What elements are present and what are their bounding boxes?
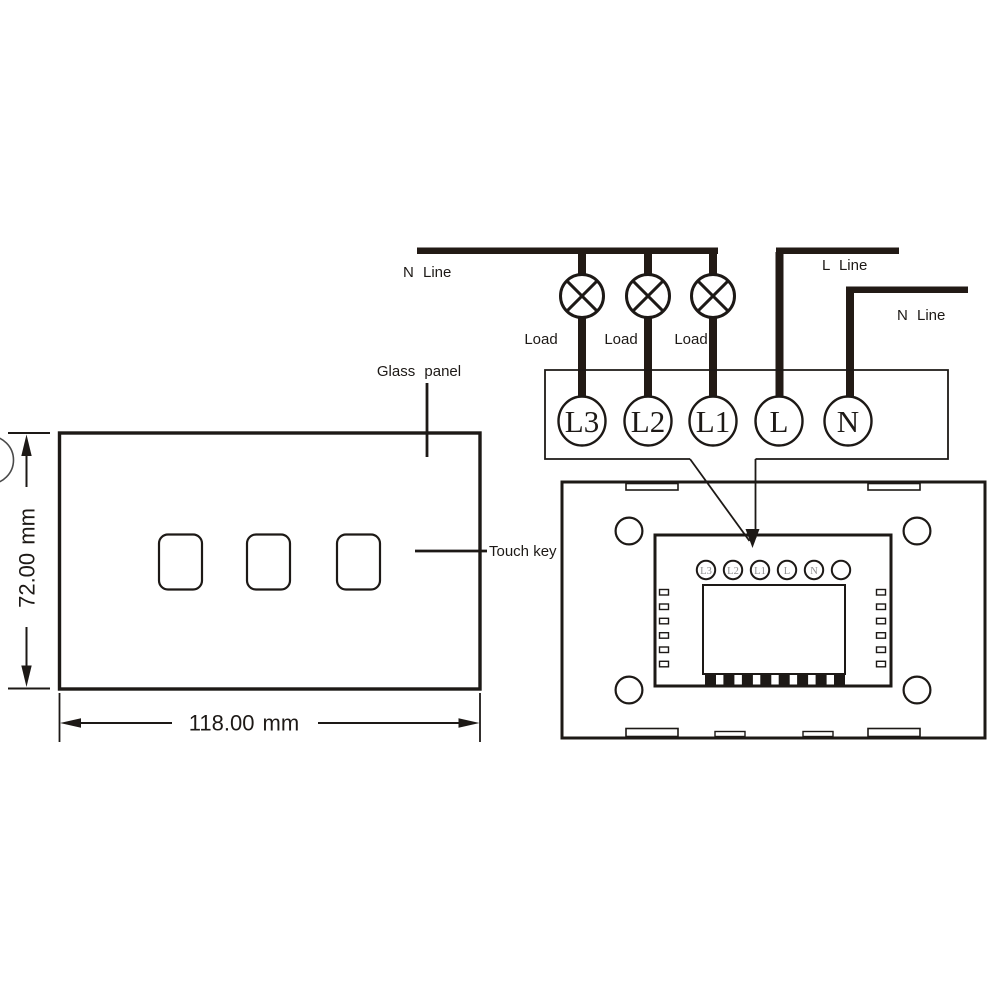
relay-block	[703, 585, 845, 674]
pin	[723, 674, 734, 686]
wire	[644, 252, 652, 276]
pin	[742, 674, 753, 686]
pin	[816, 674, 827, 686]
terminal-label: L	[770, 404, 789, 439]
pin	[760, 674, 771, 686]
module-terminal-label: L	[784, 566, 790, 577]
wire	[846, 291, 854, 399]
touch-switch-diagram: Glass panel Touch key 72.00 mm 118.00 mm	[0, 0, 1000, 1000]
terminal-label: L1	[696, 404, 730, 439]
load-label: Load	[674, 331, 707, 348]
terminal-label: L3	[565, 404, 599, 439]
load-label: Load	[524, 331, 557, 348]
left-arrow-icon	[60, 718, 81, 727]
neutral-bus-wire	[417, 248, 718, 255]
neutral-line-label: N Line	[897, 307, 945, 324]
glass-panel-outline	[60, 433, 481, 689]
pin	[779, 674, 790, 686]
pin	[797, 674, 808, 686]
right-arrow-icon	[459, 718, 480, 727]
terminal-label: L2	[631, 404, 665, 439]
pin	[834, 674, 845, 686]
live-line-label: L Line	[822, 257, 867, 274]
load-label: Load	[604, 331, 637, 348]
neutral-line-wire	[846, 287, 968, 294]
lamp-load-symbol	[627, 275, 670, 318]
wire	[578, 316, 586, 400]
lamp-load-symbol	[561, 275, 604, 318]
cropped-edge-arc	[0, 436, 14, 484]
width-dimension: 118.00 mm	[60, 693, 481, 742]
lamp-load-symbol	[692, 275, 735, 318]
module-terminal-label: L2	[727, 566, 739, 577]
wiring-diagram-page: Glass panel Touch key 72.00 mm 118.00 mm	[0, 0, 1000, 1000]
height-dimension: 72.00 mm	[8, 433, 50, 689]
width-dimension-value: 118.00 mm	[189, 711, 299, 736]
up-arrow-icon	[21, 435, 31, 457]
terminal-label: N	[837, 404, 859, 439]
down-arrow-icon	[21, 666, 31, 688]
terminal-screw	[832, 561, 850, 579]
module-terminal-label: L1	[754, 566, 766, 577]
switch-back-view: L3 L2 L1 L N	[562, 482, 985, 738]
glass-panel-front-view: Glass panel Touch key 72.00 mm 118.00 mm	[0, 363, 557, 742]
pin	[705, 674, 716, 686]
module-terminal-label: N	[810, 566, 818, 577]
neutral-bus-label: N Line	[403, 264, 451, 281]
wire	[578, 252, 586, 276]
wire	[709, 252, 717, 276]
terminal-row: L3 L2 L1 L N	[559, 397, 872, 446]
glass-panel-label: Glass panel	[377, 363, 461, 380]
wire	[644, 316, 652, 400]
wire	[776, 252, 784, 399]
live-line-wire	[776, 248, 899, 255]
height-dimension-value: 72.00 mm	[15, 508, 40, 608]
touch-key-label: Touch key	[489, 543, 557, 560]
wire	[709, 316, 717, 400]
module-terminal-label: L3	[700, 566, 712, 577]
